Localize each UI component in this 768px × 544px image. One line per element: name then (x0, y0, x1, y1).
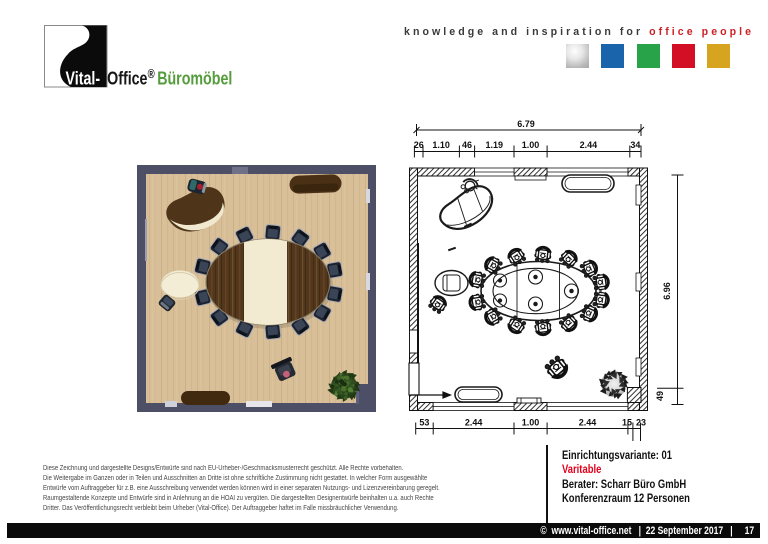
svg-text:53: 53 (419, 418, 429, 428)
svg-text:2.44: 2.44 (580, 140, 598, 150)
svg-text:Vital-: Vital- (66, 69, 101, 89)
svg-text:46: 46 (462, 140, 472, 150)
svg-text:6.79: 6.79 (517, 119, 535, 129)
svg-text:Büromöbel: Büromöbel (157, 69, 232, 89)
svg-text:1.00: 1.00 (522, 418, 540, 428)
svg-text:23: 23 (636, 418, 646, 428)
svg-text:1.19: 1.19 (486, 140, 504, 150)
svg-text:1.00: 1.00 (522, 140, 540, 150)
svg-text:2.44: 2.44 (465, 418, 483, 428)
svg-text:2.44: 2.44 (579, 418, 597, 428)
svg-text:26: 26 (414, 140, 424, 150)
svg-text:®: ® (148, 68, 156, 81)
svg-text:6.96: 6.96 (662, 282, 672, 300)
svg-text:Office: Office (107, 69, 147, 89)
svg-text:49: 49 (655, 391, 665, 401)
svg-text:34: 34 (630, 140, 640, 150)
svg-text:1.10: 1.10 (432, 140, 450, 150)
svg-text:15: 15 (622, 418, 632, 428)
